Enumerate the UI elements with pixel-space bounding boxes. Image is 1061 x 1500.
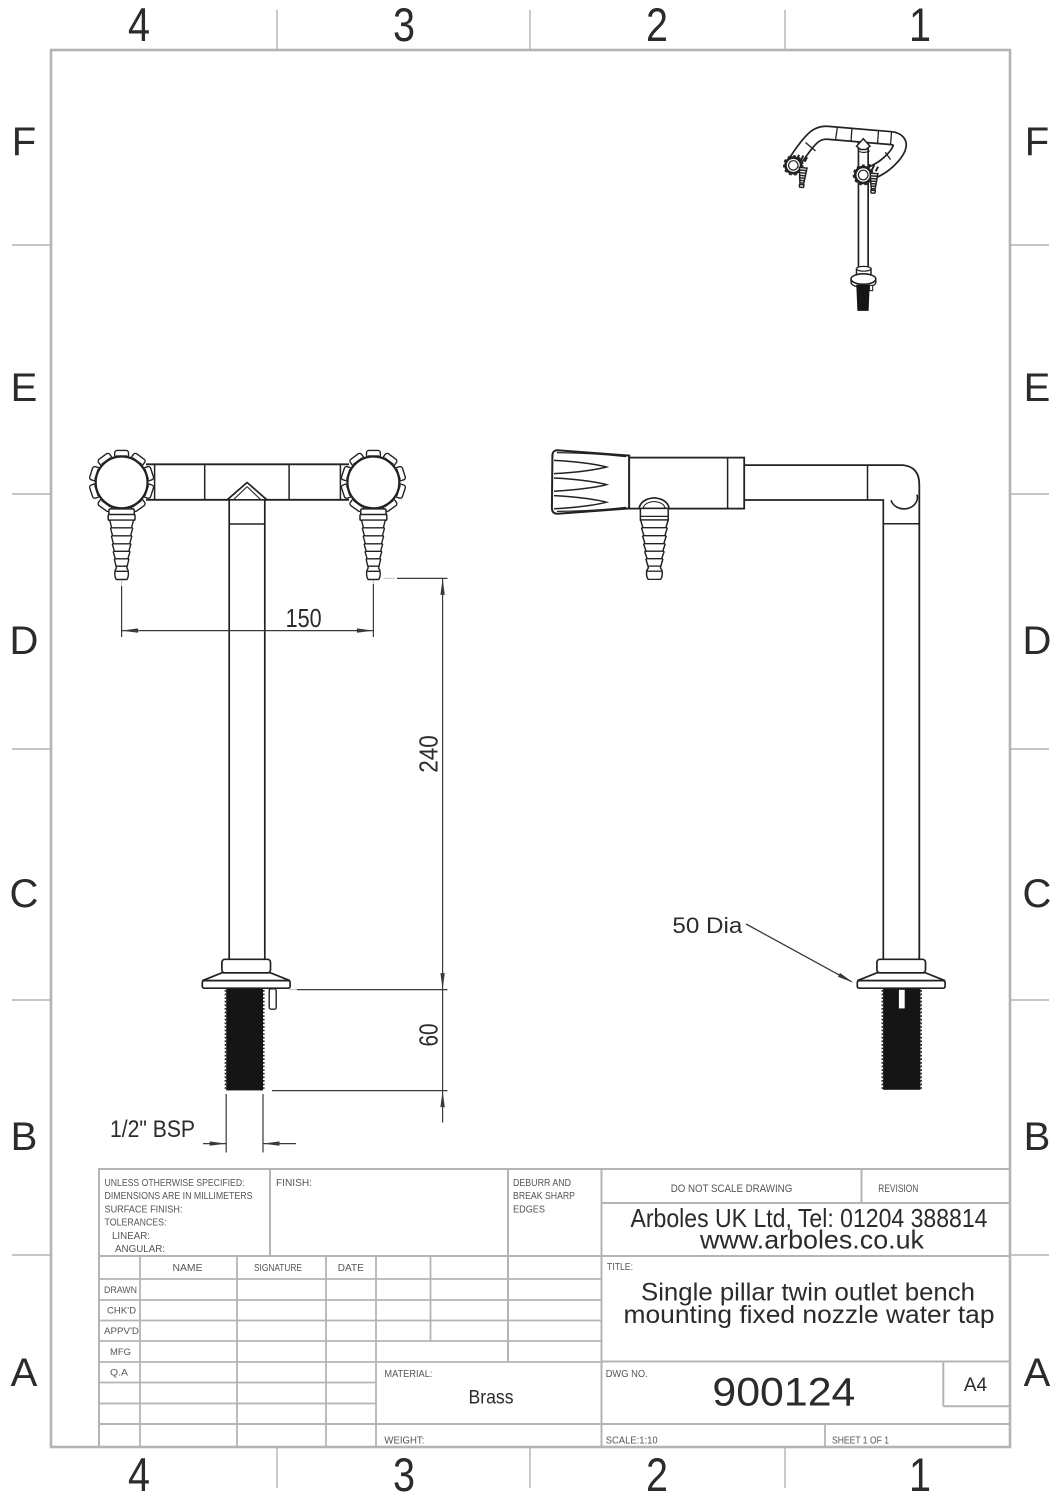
svg-text:F: F xyxy=(1025,120,1049,164)
svg-text:2: 2 xyxy=(646,0,668,51)
svg-text:60: 60 xyxy=(414,1024,444,1047)
svg-text:SCALE:1:10: SCALE:1:10 xyxy=(606,1435,658,1447)
svg-text:LINEAR:: LINEAR: xyxy=(112,1231,150,1242)
svg-text:DRAWN: DRAWN xyxy=(104,1285,137,1296)
svg-text:4: 4 xyxy=(128,0,150,51)
svg-text:NAME: NAME xyxy=(173,1263,203,1274)
svg-text:CHK'D: CHK'D xyxy=(107,1306,136,1317)
svg-text:1/2" BSP: 1/2" BSP xyxy=(110,1116,195,1143)
svg-text:TOLERANCES:: TOLERANCES: xyxy=(105,1218,167,1229)
svg-text:SURFACE FINISH:: SURFACE FINISH: xyxy=(105,1204,183,1215)
svg-text:E: E xyxy=(1024,366,1051,410)
svg-text:150: 150 xyxy=(286,603,322,633)
svg-text:MFG: MFG xyxy=(110,1347,131,1358)
svg-text:WEIGHT:: WEIGHT: xyxy=(384,1436,424,1447)
svg-text:B: B xyxy=(1024,1115,1051,1159)
svg-text:C: C xyxy=(10,872,39,916)
svg-text:50 Dia: 50 Dia xyxy=(672,913,743,938)
svg-text:DWG NO.: DWG NO. xyxy=(606,1369,648,1380)
svg-text:EDGES: EDGES xyxy=(513,1204,545,1215)
svg-text:B: B xyxy=(11,1115,38,1159)
svg-text:D: D xyxy=(10,619,39,663)
svg-text:240: 240 xyxy=(414,735,444,773)
svg-text:D: D xyxy=(1023,619,1052,663)
svg-text:E: E xyxy=(11,366,38,410)
svg-text:www.arboles.co.uk: www.arboles.co.uk xyxy=(699,1225,925,1255)
svg-text:2: 2 xyxy=(646,1448,668,1500)
svg-text:BREAK SHARP: BREAK SHARP xyxy=(513,1191,575,1202)
svg-text:A4: A4 xyxy=(964,1375,988,1396)
svg-text:UNLESS OTHERWISE SPECIFIED:: UNLESS OTHERWISE SPECIFIED: xyxy=(105,1178,245,1189)
svg-text:A: A xyxy=(1024,1351,1051,1395)
svg-text:4: 4 xyxy=(128,1448,150,1500)
svg-text:A: A xyxy=(11,1351,38,1395)
svg-text:Brass: Brass xyxy=(469,1388,514,1409)
svg-text:TITLE:: TITLE: xyxy=(607,1262,633,1273)
svg-text:ANGULAR:: ANGULAR: xyxy=(115,1244,165,1255)
svg-text:REVISION: REVISION xyxy=(878,1183,918,1195)
svg-text:DATE: DATE xyxy=(338,1263,364,1274)
svg-text:Q.A: Q.A xyxy=(110,1367,129,1378)
svg-text:1: 1 xyxy=(909,0,931,51)
svg-text:F: F xyxy=(12,120,36,164)
svg-text:APPV'D: APPV'D xyxy=(104,1326,139,1337)
svg-text:900124: 900124 xyxy=(712,1371,855,1415)
svg-text:1: 1 xyxy=(909,1448,931,1500)
svg-text:MATERIAL:: MATERIAL: xyxy=(384,1369,432,1380)
svg-text:3: 3 xyxy=(393,0,415,51)
svg-text:SHEET 1 OF 1: SHEET 1 OF 1 xyxy=(832,1435,889,1447)
svg-text:mounting fixed nozzle water t: mounting fixed nozzle water tap xyxy=(624,1301,995,1329)
svg-text:DIMENSIONS ARE IN MILLIMETERS: DIMENSIONS ARE IN MILLIMETERS xyxy=(105,1191,253,1202)
svg-text:DO NOT SCALE DRAWING: DO NOT SCALE DRAWING xyxy=(671,1183,793,1195)
svg-text:FINISH:: FINISH: xyxy=(276,1178,312,1189)
svg-text:C: C xyxy=(1023,872,1052,916)
svg-text:DEBURR AND: DEBURR AND xyxy=(513,1178,571,1189)
svg-text:3: 3 xyxy=(393,1448,415,1500)
svg-text:SIGNATURE: SIGNATURE xyxy=(254,1263,302,1274)
